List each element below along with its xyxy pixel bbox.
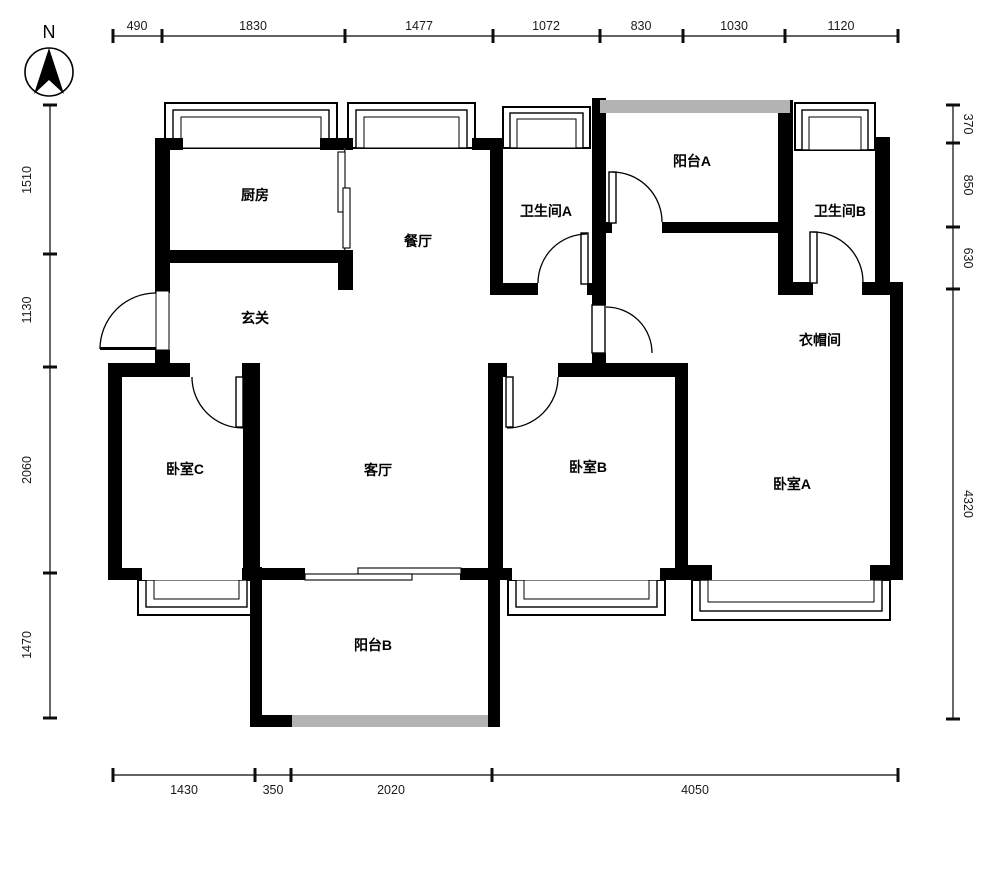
dim-top-6: 1120 bbox=[828, 19, 855, 33]
wall-bedroom-c-right bbox=[243, 363, 260, 580]
kitchen-slider-panel-2 bbox=[343, 188, 350, 248]
wall-bathroom-b-left bbox=[778, 100, 793, 293]
doors bbox=[100, 172, 863, 428]
dining-window bbox=[348, 103, 475, 148]
kitchen-window bbox=[165, 103, 337, 148]
dim-left-1: 1130 bbox=[20, 297, 34, 324]
dim-right-3: 4320 bbox=[961, 490, 975, 518]
bedroom-b-door bbox=[506, 377, 558, 428]
entry-door bbox=[100, 291, 169, 350]
railings bbox=[292, 100, 790, 727]
room-label-kitchen: 厨房 bbox=[241, 187, 269, 203]
floorplan-svg: 厨房 餐厅 卫生间A 阳台A 卫生间B 玄关 衣帽间 卧室C 客厅 卧室B 卧室… bbox=[0, 0, 1003, 877]
wall-bedroom-b-left bbox=[488, 363, 503, 580]
balcony-b-slider-panel-1 bbox=[358, 568, 461, 574]
room-label-bedroom-a: 卧室A bbox=[773, 476, 811, 492]
floorplan-page: 厨房 餐厅 卫生间A 阳台A 卫生间B 玄关 衣帽间 卧室C 客厅 卧室B 卧室… bbox=[0, 0, 1003, 877]
room-label-entry: 玄关 bbox=[241, 310, 269, 326]
compass: N bbox=[25, 22, 73, 96]
dimension-top: 490 1830 1477 1072 830 1030 1120 bbox=[112, 19, 900, 43]
dim-bottom-2: 2020 bbox=[377, 783, 405, 797]
bedroom-c-door bbox=[192, 377, 243, 428]
dim-bottom-3: 4050 bbox=[681, 783, 709, 797]
dim-right-0: 370 bbox=[961, 114, 975, 135]
wall-balcony-b-left bbox=[250, 567, 262, 727]
room-label-cloakroom: 衣帽间 bbox=[799, 332, 841, 348]
dim-left-0: 1510 bbox=[20, 166, 34, 194]
room-label-dining: 餐厅 bbox=[403, 233, 432, 249]
wall-bedroom-b-right bbox=[675, 363, 688, 580]
wall-corridor-upper bbox=[592, 98, 606, 305]
dim-left-3: 1470 bbox=[20, 631, 34, 659]
dim-top-4: 830 bbox=[631, 19, 652, 33]
dim-bottom-1: 350 bbox=[263, 783, 284, 797]
dimension-bottom: 1430 350 2020 4050 bbox=[112, 768, 900, 797]
wall-balcony-b-corner bbox=[250, 715, 292, 727]
wall-bedroom-c-left bbox=[108, 363, 122, 580]
wall-balcony-b-right bbox=[488, 567, 500, 727]
dimension-left: 1510 1130 2060 1470 bbox=[20, 104, 57, 720]
bathroom-a-door bbox=[538, 233, 588, 284]
room-label-bedroom-b: 卧室B bbox=[569, 459, 607, 475]
dimension-right: 370 850 630 4320 bbox=[946, 104, 975, 721]
dim-right-2: 630 bbox=[961, 248, 975, 269]
room-label-balcony-b: 阳台B bbox=[354, 637, 392, 653]
sliding-doors bbox=[305, 148, 461, 580]
room-label-living: 客厅 bbox=[363, 462, 392, 478]
dim-top-3: 1072 bbox=[532, 19, 560, 33]
bedroom-b-window bbox=[508, 580, 665, 615]
wall-bathroom-b-right bbox=[875, 137, 890, 293]
balcony-a-door bbox=[609, 172, 662, 223]
room-label-bedroom-c: 卧室C bbox=[166, 461, 204, 477]
room-label-balcony-a: 阳台A bbox=[673, 153, 711, 169]
dim-top-1: 1830 bbox=[239, 19, 267, 33]
room-label-bathroom-a: 卫生间A bbox=[520, 203, 572, 219]
balcony-b-railing bbox=[292, 715, 488, 727]
bathroom-b-door bbox=[810, 232, 863, 283]
north-label: N bbox=[43, 22, 56, 42]
bathroom-a-window bbox=[503, 107, 590, 148]
wall-living-bottom-right bbox=[460, 568, 488, 580]
dim-top-5: 1030 bbox=[720, 19, 748, 33]
cloakroom-door bbox=[592, 305, 652, 353]
wall-kitchen-bottom bbox=[155, 250, 353, 263]
wall-living-bottom-left bbox=[243, 568, 305, 580]
dim-top-2: 1477 bbox=[405, 19, 433, 33]
dim-left-2: 2060 bbox=[20, 456, 34, 484]
room-label-bathroom-b: 卫生间B bbox=[814, 203, 866, 219]
wall-kitchen-left bbox=[155, 138, 170, 293]
bedroom-c-window bbox=[138, 580, 255, 615]
wall-bathroom-a-left bbox=[490, 140, 503, 295]
dim-right-1: 850 bbox=[961, 175, 975, 196]
balcony-b-slider-panel-2 bbox=[305, 574, 412, 580]
dim-top-0: 490 bbox=[127, 19, 148, 33]
balcony-a-railing bbox=[600, 100, 790, 113]
dim-bottom-0: 1430 bbox=[170, 783, 198, 797]
bathroom-b-window bbox=[795, 103, 875, 150]
wall-kitchen-stub bbox=[338, 250, 353, 290]
wall-right-exterior bbox=[890, 288, 903, 580]
bedroom-a-window bbox=[692, 580, 890, 620]
wall-top-band-1 bbox=[320, 138, 353, 150]
